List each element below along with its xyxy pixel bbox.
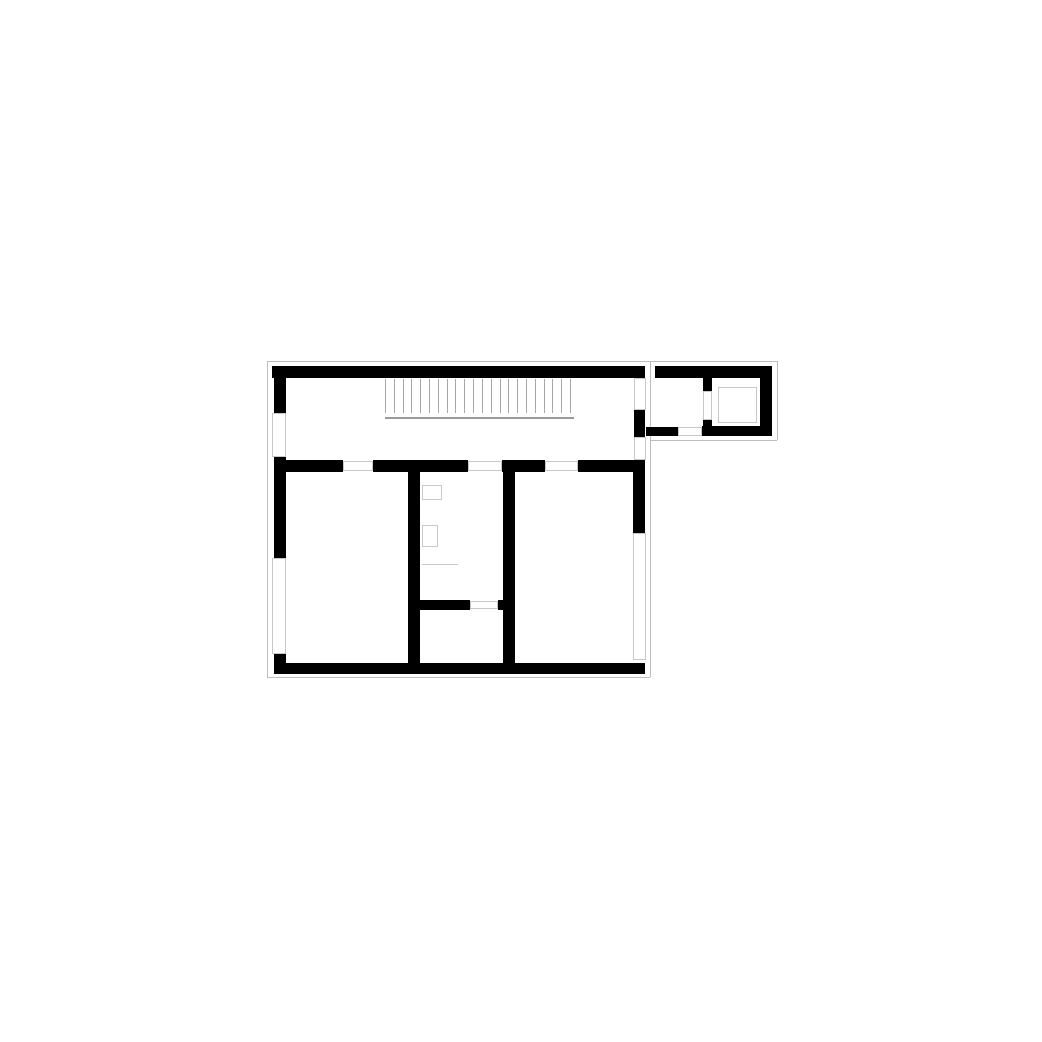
- elevator-shaft: [718, 387, 757, 423]
- stair-hatch-line: [517, 379, 518, 413]
- corridor-left-wall: [274, 366, 286, 413]
- outline-top: [267, 361, 777, 362]
- partition-wall-left: [408, 460, 420, 664]
- stair-hatch-line: [491, 379, 492, 413]
- stair-hatch-line: [411, 379, 412, 413]
- stair-hatch-line: [473, 379, 474, 413]
- stair-hatch-line: [394, 379, 395, 413]
- elevator-room-wall-lower: [703, 420, 712, 436]
- door-bathroom-top: [468, 461, 502, 471]
- window-left-upper: [272, 413, 286, 457]
- corridor-top-wall: [272, 366, 645, 378]
- stair-hatch-baseline: [385, 417, 574, 419]
- window-corridor-right: [634, 378, 646, 410]
- stair-hatch-line: [385, 379, 386, 413]
- outline-main-right: [650, 361, 651, 677]
- door-bathroom-bottom: [470, 601, 498, 609]
- bathroom-bottom-wall: [418, 600, 470, 610]
- lower-top-wall-seg2: [373, 460, 468, 472]
- lower-right-wall: [633, 460, 645, 533]
- door-room-left: [343, 461, 373, 471]
- stair-hatch-line: [552, 379, 553, 413]
- stair-hatch-line: [464, 379, 465, 413]
- stair-hatch-line: [500, 379, 501, 413]
- stair-hatch-line: [420, 379, 421, 413]
- floor-plan: [0, 0, 1042, 1042]
- door-annex-lobby: [678, 427, 702, 436]
- stair-hatch-line: [482, 379, 483, 413]
- stair-hatch-line: [438, 379, 439, 413]
- bathroom-fixture-1: [422, 485, 442, 500]
- stair-hatch-line: [455, 379, 456, 413]
- outline-annex-right: [777, 361, 778, 440]
- bathroom-fixture-2: [422, 525, 438, 547]
- stair-hatch-line: [508, 379, 509, 413]
- lower-bottom-wall: [274, 663, 645, 674]
- lower-top-wall-seg1: [274, 460, 343, 472]
- outline-annex-bottom: [650, 440, 777, 441]
- door-room-right: [545, 461, 578, 471]
- stair-hatch-line: [544, 379, 545, 413]
- stair-hatch-line: [570, 379, 571, 413]
- window-lower-right: [633, 533, 646, 660]
- elevator-room-wall-upper: [703, 376, 712, 391]
- window-left-lower: [272, 558, 286, 654]
- stair-hatch-line: [429, 379, 430, 413]
- stair-hatch-line: [447, 379, 448, 413]
- outline-left: [267, 361, 268, 677]
- partition-wall-right: [503, 460, 515, 664]
- opening-corridor-to-lower: [634, 437, 646, 460]
- stair-hatch-line: [526, 379, 527, 413]
- outline-bottom: [267, 677, 650, 678]
- bathroom-counter-line: [422, 564, 458, 565]
- annex-top-wall: [655, 366, 772, 378]
- stair-hatch-line: [561, 379, 562, 413]
- annex-lobby-bottom-wall: [646, 427, 678, 436]
- annex-bottom-wall: [702, 426, 772, 436]
- door-elevator-room: [703, 391, 712, 420]
- stair-hatch-line: [535, 379, 536, 413]
- corridor-right-stub: [634, 410, 645, 437]
- stair-hatch-line: [403, 379, 404, 413]
- bathroom-door-stub: [498, 600, 505, 610]
- lower-left-wall: [274, 457, 286, 558]
